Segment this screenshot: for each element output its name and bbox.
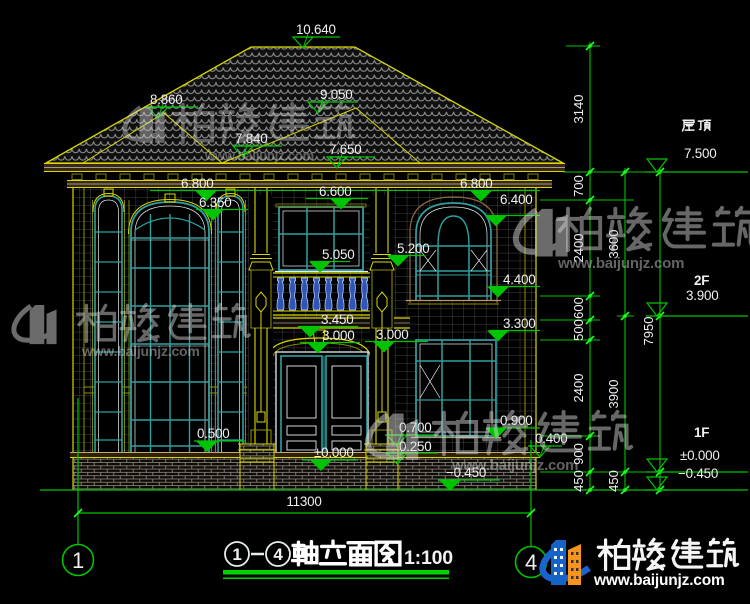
svg-text:2400: 2400 xyxy=(571,374,586,403)
svg-text:3.450: 3.450 xyxy=(321,312,354,327)
svg-text:450: 450 xyxy=(606,470,621,492)
svg-text:−0.450: −0.450 xyxy=(678,466,718,481)
svg-text:3.000: 3.000 xyxy=(322,328,355,343)
svg-text:7.650: 7.650 xyxy=(329,142,362,157)
svg-text:700: 700 xyxy=(571,175,586,197)
svg-text:±0.000: ±0.000 xyxy=(680,448,720,463)
svg-text:1: 1 xyxy=(72,548,84,573)
svg-text:3.900: 3.900 xyxy=(686,288,719,303)
svg-text:6.800: 6.800 xyxy=(181,176,214,191)
svg-text:6.600: 6.600 xyxy=(319,184,352,199)
svg-text:1:100: 1:100 xyxy=(404,547,453,569)
svg-text:600: 600 xyxy=(571,297,586,319)
svg-text:www.baijunjz.com: www.baijunjz.com xyxy=(81,343,200,359)
svg-text:www.baijunjz.com: www.baijunjz.com xyxy=(557,255,684,272)
svg-text:6.350: 6.350 xyxy=(199,195,232,210)
svg-text:www.baijunjz.com: www.baijunjz.com xyxy=(451,457,578,474)
svg-text:2F: 2F xyxy=(694,273,709,288)
svg-text:4: 4 xyxy=(525,550,537,575)
svg-text:3140: 3140 xyxy=(571,95,586,124)
svg-text:8.860: 8.860 xyxy=(150,92,183,107)
svg-text:1: 1 xyxy=(232,545,241,564)
svg-text:5.200: 5.200 xyxy=(397,241,430,256)
svg-text:10.640: 10.640 xyxy=(296,22,336,37)
svg-text:500: 500 xyxy=(571,319,586,341)
svg-text:4: 4 xyxy=(273,545,283,564)
svg-text:9.050: 9.050 xyxy=(320,87,353,102)
svg-text:6.400: 6.400 xyxy=(500,192,533,207)
svg-text:1F: 1F xyxy=(694,425,709,440)
svg-text:±0.000: ±0.000 xyxy=(314,445,354,460)
svg-text:www.baijunjz.com: www.baijunjz.com xyxy=(593,572,725,589)
svg-text:7950: 7950 xyxy=(641,317,656,346)
svg-text:0.500: 0.500 xyxy=(197,426,230,441)
svg-text:3900: 3900 xyxy=(606,380,621,409)
svg-text:3.000: 3.000 xyxy=(376,327,409,342)
svg-text:11300: 11300 xyxy=(286,494,321,509)
svg-text:3.300: 3.300 xyxy=(503,316,536,331)
svg-text:4.400: 4.400 xyxy=(503,272,536,287)
svg-text:6.800: 6.800 xyxy=(460,176,493,191)
svg-text:5.050: 5.050 xyxy=(322,247,355,262)
svg-text:www.baijunjz.com: www.baijunjz.com xyxy=(204,148,314,163)
svg-text:7.500: 7.500 xyxy=(684,146,717,161)
